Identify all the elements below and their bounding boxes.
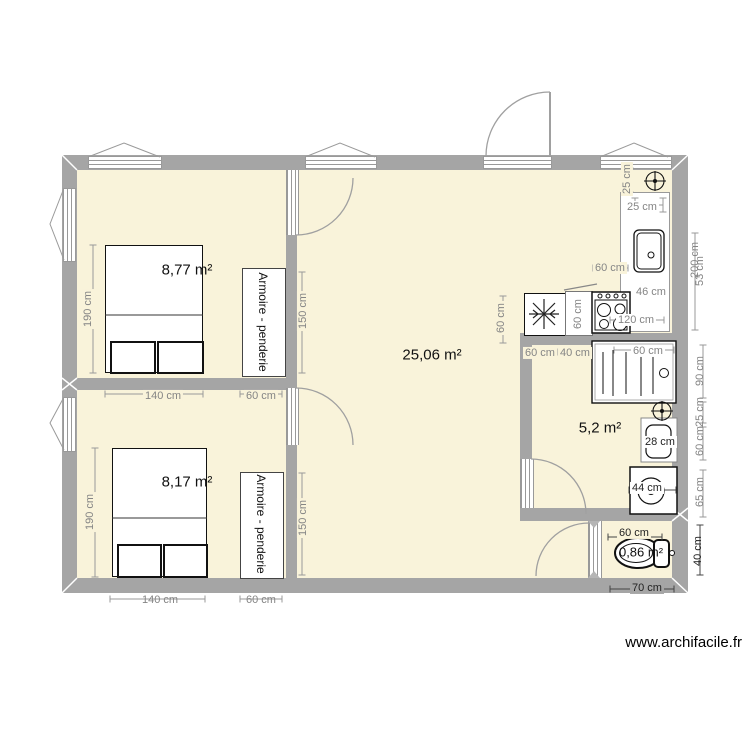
dim-label-wc_60: 60 cm <box>617 527 651 539</box>
wardrobe2-label: Armoire - penderie <box>254 474 268 573</box>
dim-label-bottom_60: 60 cm <box>244 594 278 606</box>
dim-label-counter_top_25: 25 cm <box>621 162 633 196</box>
dim-label-fridge_60: 60 cm <box>495 301 507 335</box>
dim-label-wc_70: 70 cm <box>630 582 664 594</box>
dim-label-mid_60: 60 cm <box>244 390 278 402</box>
dim-label-right_65: 65 cm <box>694 475 706 509</box>
dim-label-cabinet_60: 60 cm <box>572 297 584 331</box>
room-label-bathroom: 5,2 m² <box>579 420 622 437</box>
dim-label-wc_40: 40 cm <box>692 534 704 568</box>
dim-label-bottom_140: 140 cm <box>140 594 180 606</box>
bed1-pillow-right <box>157 341 204 374</box>
wall-partition-bedroom2 <box>286 445 297 578</box>
watermark: www.archifacile.fr <box>625 634 742 651</box>
dim-label-counter_25: 25 cm <box>625 201 659 213</box>
wall-bottom <box>62 578 688 593</box>
entry-door-threshold <box>483 156 552 169</box>
bed2-pillow-right <box>163 544 208 578</box>
wardrobe1-label: Armoire - penderie <box>256 272 270 371</box>
dim-label-basin_28: 28 cm <box>643 436 677 448</box>
dim-label-right_90: 90 cm <box>694 354 706 388</box>
room-label-living: 25,06 m² <box>402 347 461 364</box>
dim-label-shower_60: 60 cm <box>631 345 665 357</box>
dim-label-right_60: 60 cm <box>694 424 706 458</box>
room-label-bedroom2: 8,17 m² <box>162 474 213 491</box>
dim-label-bed1_height: 190 cm <box>82 289 94 329</box>
dim-label-wardrobe2_150: 150 cm <box>297 498 309 538</box>
door-leaf-bedroom1 <box>286 170 299 235</box>
bed1-pillow-left <box>110 341 156 374</box>
room-label-bedroom1: 8,77 m² <box>162 262 213 279</box>
dim-label-bath_60: 60 cm <box>523 347 557 359</box>
fridge <box>524 293 566 336</box>
dim-label-counter_120: 120 cm <box>616 314 656 326</box>
door-arc-entry <box>486 92 550 156</box>
dim-label-bed2_height: 190 cm <box>84 492 96 532</box>
window-top-3 <box>600 156 672 169</box>
window-top-1 <box>88 156 162 169</box>
dim-label-wardrobe1_150: 150 cm <box>297 291 309 331</box>
door-leaf-bedroom2 <box>286 388 299 445</box>
dim-label-bath_40: 40 cm <box>558 347 592 359</box>
dim-label-mid_140: 140 cm <box>143 390 183 402</box>
door-leaf-bathroom <box>520 459 534 508</box>
window-left-1 <box>63 188 76 262</box>
wall-bathroom-left <box>520 345 532 459</box>
bed2-pillow-left <box>117 544 162 578</box>
window-left-2 <box>63 397 76 452</box>
dim-label-sink_46: 46 cm <box>634 286 668 298</box>
wall-bathroom-bottom <box>520 508 672 521</box>
dim-label-stove_60: 60 cm <box>593 262 627 274</box>
dim-label-washer_44: 44 cm <box>630 482 664 494</box>
wall-partition-bedroom1 <box>286 235 297 378</box>
room-label-wc: 0,86 m² <box>619 545 663 560</box>
door-leaf-wc <box>588 521 602 578</box>
wall-between-bedrooms <box>77 378 297 390</box>
window-top-2 <box>305 156 377 169</box>
wall-right <box>672 155 688 593</box>
floor-plan-canvas: 8,77 m² 8,17 m² 25,06 m² 5,2 m² 0,86 m² … <box>0 0 750 750</box>
dim-label-right_53: 53 cm <box>694 254 706 288</box>
